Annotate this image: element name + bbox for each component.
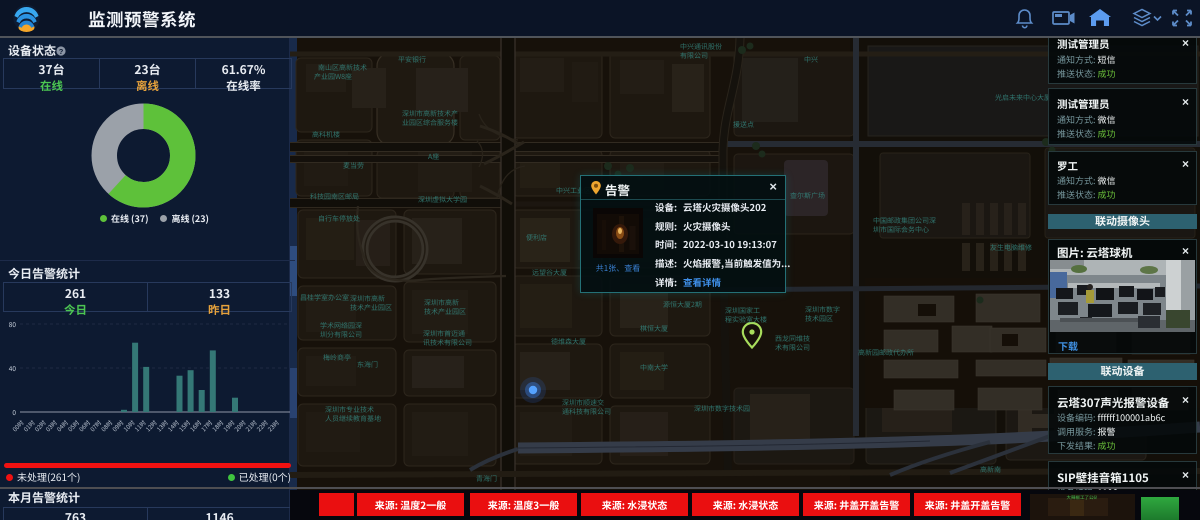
svg-text:高新南: 高新南 (980, 465, 1001, 475)
svg-text:平安银行: 平安银行 (398, 55, 426, 65)
svg-text:麦当劳: 麦当劳 (343, 161, 364, 171)
svg-text:远望谷大厦: 远望谷大厦 (532, 268, 567, 278)
svg-text:源恒大厦2期: 源恒大厦2期 (663, 300, 702, 310)
svg-text:高科机楼: 高科机楼 (312, 130, 340, 140)
svg-text:深圳虚拟大学园: 深圳虚拟大学园 (418, 195, 467, 205)
svg-text:产业园W8座: 产业园W8座 (314, 72, 352, 82)
svg-text:东海门: 东海门 (357, 360, 378, 370)
svg-text:80: 80 (9, 319, 17, 329)
svg-text:科技园南区邮局: 科技园南区邮局 (310, 192, 359, 202)
svg-text:便利店: 便利店 (526, 233, 547, 243)
svg-text:大辣椒工了公6!: 大辣椒工了公6! (1067, 495, 1098, 501)
svg-text:术有限公司: 术有限公司 (775, 343, 810, 353)
svg-text:棋恒大厦: 棋恒大厦 (640, 324, 668, 334)
svg-text:23时: 23时 (265, 418, 280, 433)
svg-text:高新园邮政代办所: 高新园邮政代办所 (858, 348, 914, 358)
svg-text:昌桂学室办公室: 昌桂学室办公室 (300, 293, 349, 303)
svg-text:梅岭商亭: 梅岭商亭 (323, 353, 351, 363)
svg-text:有限公司: 有限公司 (680, 51, 708, 61)
svg-text:技术产业园区: 技术产业园区 (350, 303, 392, 313)
svg-text:人员继续教育基地: 人员继续教育基地 (325, 414, 381, 424)
svg-text:中南大学: 中南大学 (640, 363, 668, 373)
svg-text:讯技术有限公司: 讯技术有限公司 (423, 338, 472, 348)
svg-text:通科技有限公司: 通科技有限公司 (562, 407, 611, 417)
svg-text:青海门: 青海门 (476, 474, 497, 484)
svg-text:圳分有限公司: 圳分有限公司 (320, 330, 362, 340)
svg-text:中兴: 中兴 (804, 55, 818, 65)
svg-text:查尔斯广场: 查尔斯广场 (790, 191, 825, 201)
svg-text:自行车停放处: 自行车停放处 (318, 214, 360, 224)
svg-text:程实验室大楼: 程实验室大楼 (725, 315, 767, 325)
svg-text:圳市国际会务中心: 圳市国际会务中心 (873, 225, 929, 235)
svg-text:友生电脑维修: 友生电脑维修 (990, 243, 1032, 253)
svg-text:0: 0 (12, 407, 16, 417)
svg-text:技术园区: 技术园区 (805, 314, 833, 324)
svg-text:技术产业园区: 技术产业园区 (424, 307, 466, 317)
svg-text:业园区综合服务楼: 业园区综合服务楼 (402, 118, 458, 128)
svg-text:A座: A座 (428, 152, 439, 162)
svg-text:德维森大厦: 德维森大厦 (551, 337, 586, 347)
svg-text:光启未来中心大厦: 光启未来中心大厦 (995, 93, 1051, 103)
svg-text:援送点: 援送点 (733, 120, 754, 130)
svg-text:40: 40 (9, 363, 17, 373)
svg-text:?: ? (59, 47, 64, 56)
svg-text:深圳市数字技术园: 深圳市数字技术园 (694, 404, 750, 414)
